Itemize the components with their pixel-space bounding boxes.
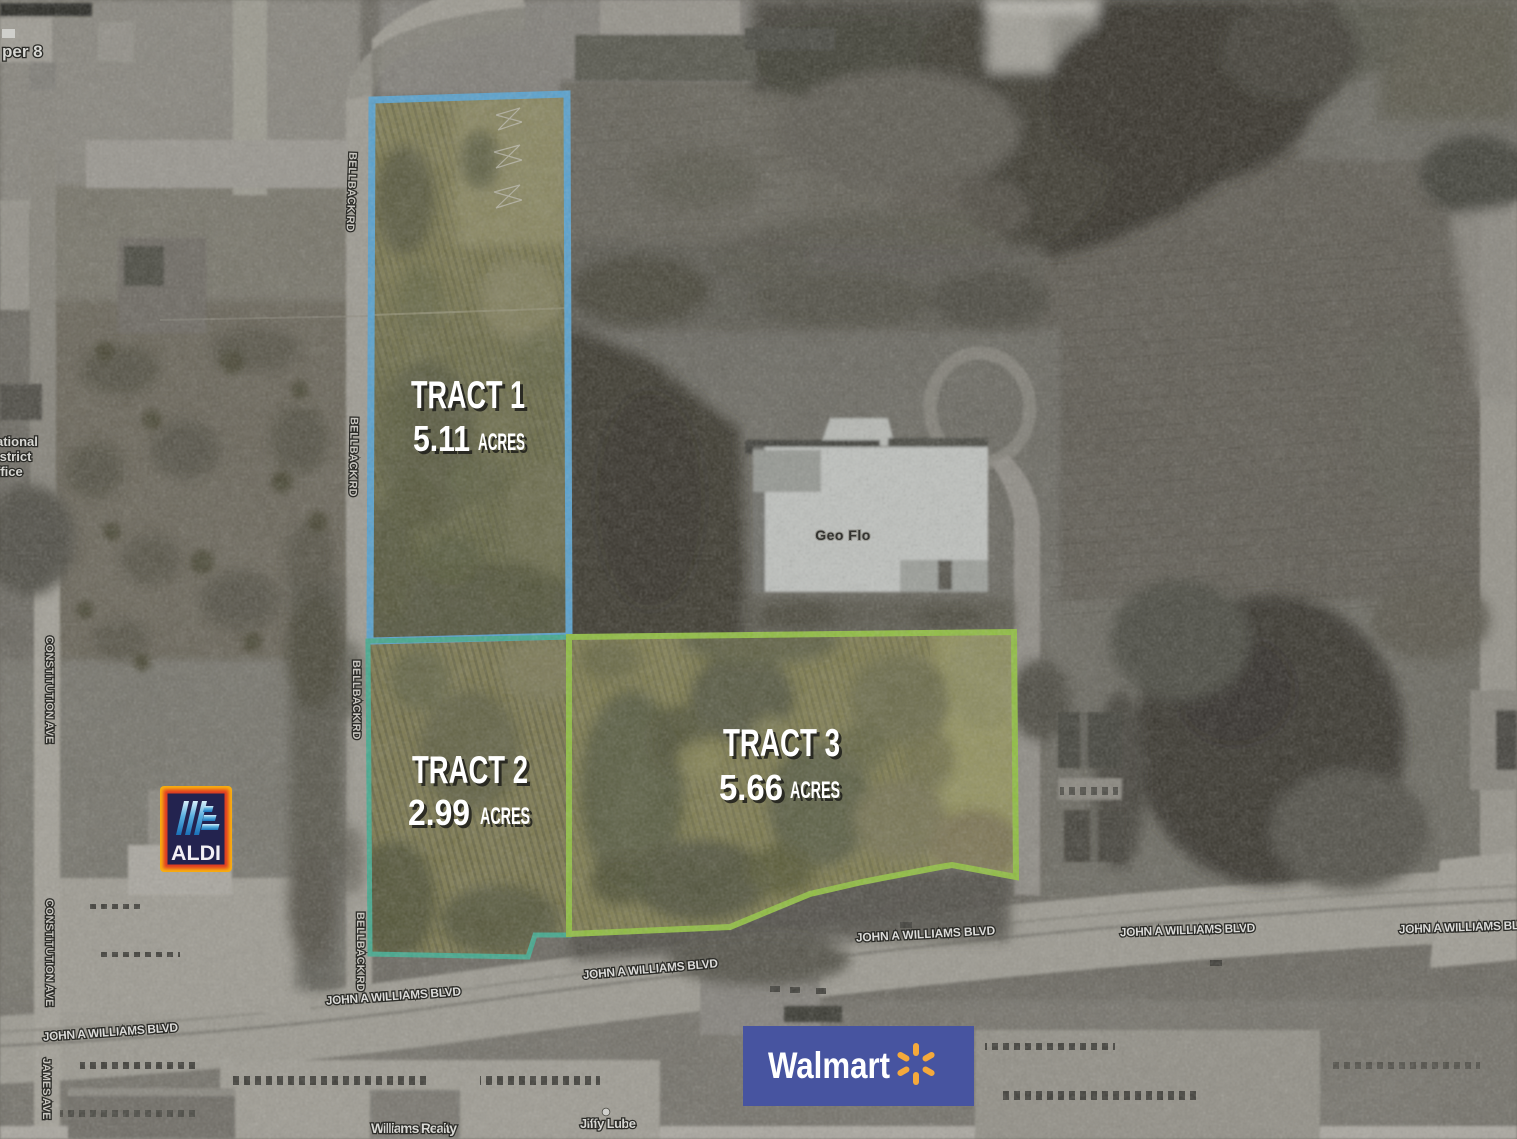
svg-text:TRACT 3: TRACT 3 xyxy=(723,722,840,765)
svg-text:ffice: ffice xyxy=(0,464,23,479)
svg-text:BELLBACK RD: BELLBACK RD xyxy=(346,417,359,497)
svg-text:ACRES: ACRES xyxy=(480,803,530,830)
svg-text:TRACT 1: TRACT 1 xyxy=(411,374,525,417)
svg-text:BELLBACK RD: BELLBACK RD xyxy=(350,660,362,740)
svg-text:CONSTITUTION AVE: CONSTITUTION AVE xyxy=(43,636,55,744)
svg-text:BELLBACK RD: BELLBACK RD xyxy=(354,912,366,992)
svg-text:TRACT 2: TRACT 2 xyxy=(412,749,528,792)
svg-text:Jiffy Lube: Jiffy Lube xyxy=(580,1116,636,1131)
svg-text:Geo Flo: Geo Flo xyxy=(815,527,871,543)
svg-text:5.66: 5.66 xyxy=(719,767,783,808)
svg-text:ALDI: ALDI xyxy=(171,842,221,865)
svg-text:Williams Realty: Williams Realty xyxy=(371,1120,457,1136)
svg-text:JAMES AVE: JAMES AVE xyxy=(40,1058,52,1120)
svg-text:5.11: 5.11 xyxy=(413,418,470,459)
svg-text:istrict: istrict xyxy=(0,449,32,464)
svg-text:2.99: 2.99 xyxy=(408,792,470,833)
svg-text:per 8: per 8 xyxy=(2,42,43,61)
svg-text:Walmart: Walmart xyxy=(768,1045,890,1086)
svg-text:ACRES: ACRES xyxy=(478,429,525,456)
svg-text:ACRES: ACRES xyxy=(790,777,840,804)
svg-text:ational: ational xyxy=(0,434,38,449)
svg-text:CONSTITUTION AVE: CONSTITUTION AVE xyxy=(43,899,55,1007)
